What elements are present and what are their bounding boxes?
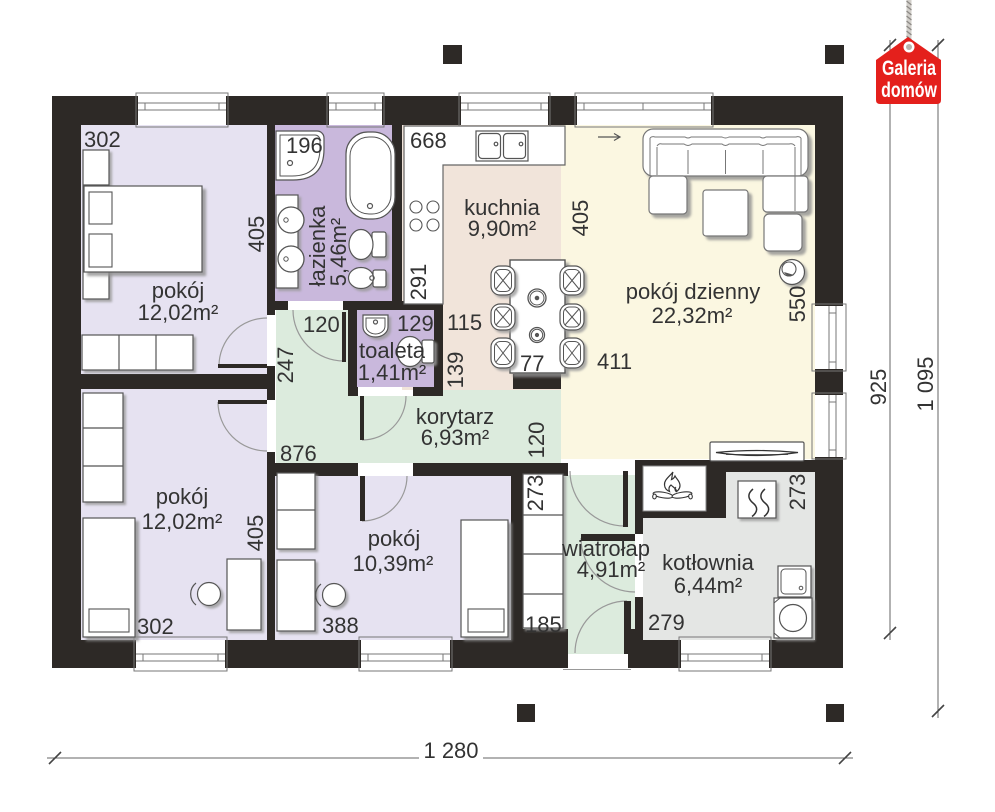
- svg-text:388: 388: [322, 613, 359, 638]
- svg-text:120: 120: [303, 312, 340, 337]
- svg-text:domów: domów: [881, 78, 937, 102]
- svg-text:291: 291: [406, 264, 431, 301]
- svg-text:kotłownia: kotłownia: [662, 550, 754, 575]
- svg-text:279: 279: [648, 610, 685, 635]
- svg-text:196: 196: [286, 133, 323, 158]
- svg-text:Galeria: Galeria: [882, 56, 937, 80]
- svg-text:925: 925: [866, 369, 891, 406]
- svg-text:1 095: 1 095: [913, 356, 938, 411]
- svg-text:273: 273: [523, 475, 548, 512]
- svg-text:185: 185: [525, 612, 562, 637]
- svg-text:405: 405: [243, 515, 268, 552]
- svg-text:9,90m²: 9,90m²: [468, 216, 536, 241]
- svg-text:12,02m²: 12,02m²: [142, 509, 223, 534]
- svg-text:302: 302: [137, 614, 174, 639]
- svg-text:1,41m²: 1,41m²: [358, 360, 426, 385]
- svg-text:120: 120: [524, 422, 549, 459]
- svg-text:247: 247: [273, 347, 298, 384]
- svg-text:550: 550: [785, 286, 810, 323]
- svg-text:pokój: pokój: [368, 526, 421, 551]
- svg-text:129: 129: [397, 311, 434, 336]
- svg-text:pokój: pokój: [156, 484, 209, 509]
- svg-text:405: 405: [568, 200, 593, 237]
- svg-text:876: 876: [280, 441, 317, 466]
- svg-text:10,39m²: 10,39m²: [353, 551, 434, 576]
- svg-text:4,91m²: 4,91m²: [577, 557, 645, 582]
- svg-text:139: 139: [443, 352, 468, 389]
- svg-text:pokój dzienny: pokój dzienny: [626, 279, 761, 304]
- svg-text:77: 77: [520, 351, 544, 376]
- svg-text:12,02m²: 12,02m²: [138, 300, 219, 325]
- svg-text:668: 668: [410, 128, 447, 153]
- svg-text:1 280: 1 280: [423, 738, 478, 763]
- svg-text:302: 302: [84, 127, 121, 152]
- svg-text:273: 273: [785, 474, 810, 511]
- svg-text:411: 411: [597, 349, 632, 374]
- svg-text:6,93m²: 6,93m²: [421, 425, 489, 450]
- svg-text:115: 115: [447, 310, 482, 335]
- svg-text:6,44m²: 6,44m²: [674, 573, 742, 598]
- svg-text:22,32m²: 22,32m²: [652, 303, 733, 328]
- svg-text:405: 405: [244, 216, 269, 253]
- svg-text:5,46m²: 5,46m²: [326, 218, 351, 286]
